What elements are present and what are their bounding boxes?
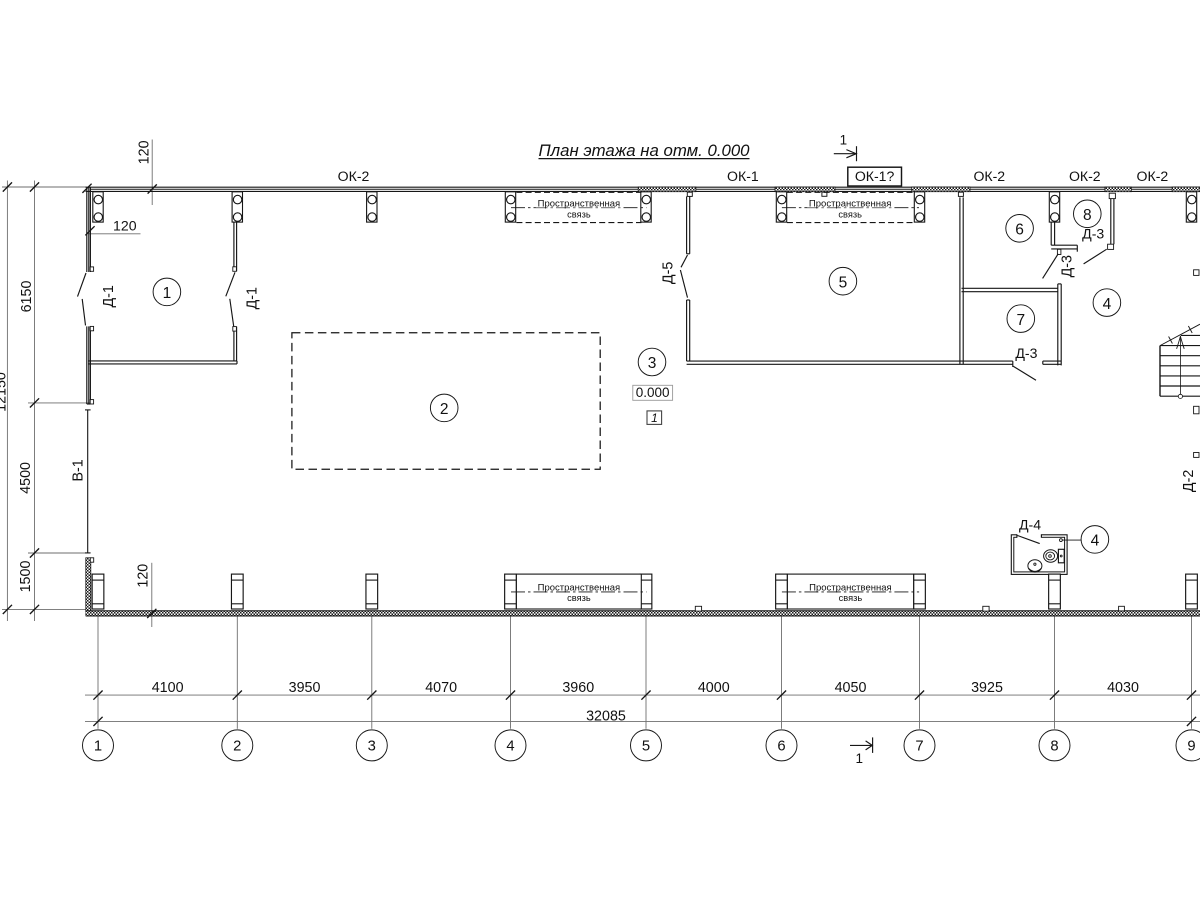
svg-text:12150: 12150 <box>0 372 10 412</box>
svg-text:8: 8 <box>1083 207 1092 224</box>
svg-text:ОК-2: ОК-2 <box>973 168 1005 184</box>
svg-text:связь: связь <box>838 210 862 220</box>
svg-text:4050: 4050 <box>835 680 867 696</box>
svg-text:2: 2 <box>440 401 449 418</box>
svg-text:4070: 4070 <box>425 680 457 696</box>
svg-text:связь: связь <box>839 593 863 603</box>
svg-text:3960: 3960 <box>562 680 594 696</box>
svg-text:ОК-1: ОК-1 <box>727 168 759 184</box>
svg-text:6150: 6150 <box>19 281 35 313</box>
svg-text:120: 120 <box>113 218 137 234</box>
svg-text:7: 7 <box>1016 312 1025 329</box>
svg-text:Д-5: Д-5 <box>661 262 677 284</box>
svg-text:3925: 3925 <box>971 680 1003 696</box>
svg-text:Д-3: Д-3 <box>1015 345 1037 361</box>
svg-text:3: 3 <box>648 355 657 372</box>
svg-text:8: 8 <box>1050 739 1058 755</box>
svg-text:Пространственная: Пространственная <box>538 583 621 593</box>
svg-text:1: 1 <box>840 133 848 148</box>
svg-text:Д-1: Д-1 <box>244 287 260 309</box>
svg-text:4: 4 <box>1103 296 1112 313</box>
svg-text:2: 2 <box>233 739 241 755</box>
svg-text:Пространственная: Пространственная <box>809 198 892 208</box>
svg-text:5: 5 <box>642 739 650 755</box>
svg-text:4: 4 <box>1091 533 1100 550</box>
svg-text:1: 1 <box>94 739 102 755</box>
svg-text:Пространственная: Пространственная <box>538 198 621 208</box>
svg-text:связь: связь <box>567 593 591 603</box>
svg-text:6: 6 <box>1015 222 1024 239</box>
svg-text:32085: 32085 <box>586 708 626 724</box>
svg-text:Пространственная: Пространственная <box>809 583 892 593</box>
svg-text:1500: 1500 <box>18 561 34 593</box>
svg-text:В-1: В-1 <box>70 459 86 481</box>
svg-text:1: 1 <box>651 411 658 425</box>
svg-text:ОК-2: ОК-2 <box>338 168 370 184</box>
svg-text:5: 5 <box>839 274 848 291</box>
svg-text:1: 1 <box>855 751 863 766</box>
svg-text:4500: 4500 <box>18 462 34 494</box>
svg-text:1: 1 <box>163 285 172 302</box>
svg-text:Д-1: Д-1 <box>101 285 117 307</box>
svg-text:4000: 4000 <box>698 680 730 696</box>
svg-text:ОК-1?: ОК-1? <box>855 168 895 184</box>
svg-text:связь: связь <box>567 210 591 220</box>
svg-text:7: 7 <box>915 739 923 755</box>
svg-text:120: 120 <box>136 140 152 164</box>
svg-text:4: 4 <box>506 739 514 755</box>
svg-text:6: 6 <box>777 739 785 755</box>
svg-text:0.000: 0.000 <box>636 385 670 400</box>
svg-text:Д-3: Д-3 <box>1059 255 1075 277</box>
svg-text:ОК-2: ОК-2 <box>1137 168 1169 184</box>
svg-text:Д-3: Д-3 <box>1082 226 1104 242</box>
svg-text:120: 120 <box>135 564 151 588</box>
svg-text:4030: 4030 <box>1107 680 1139 696</box>
svg-text:3950: 3950 <box>289 680 321 696</box>
svg-text:ОК-2: ОК-2 <box>1069 168 1101 184</box>
svg-text:9: 9 <box>1187 739 1195 755</box>
svg-text:Д-2: Д-2 <box>1181 470 1197 492</box>
svg-text:Д-4: Д-4 <box>1019 517 1041 533</box>
svg-text:3: 3 <box>368 739 376 755</box>
svg-text:План этажа на отм. 0.000: План этажа на отм. 0.000 <box>539 142 750 160</box>
svg-text:4100: 4100 <box>152 680 184 696</box>
